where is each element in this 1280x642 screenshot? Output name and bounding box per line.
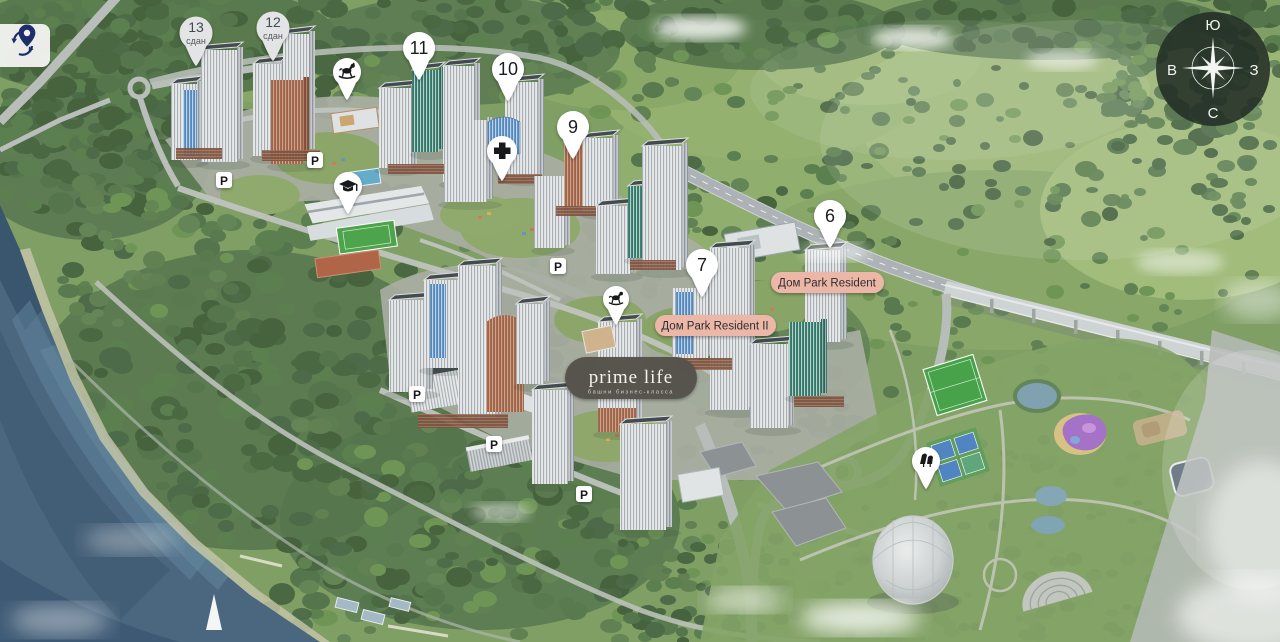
svg-text:9: 9 bbox=[568, 117, 578, 137]
svg-text:10: 10 bbox=[498, 59, 518, 79]
svg-text:Дом Park Resident: Дом Park Resident bbox=[778, 278, 876, 290]
svg-text:prime life: prime life bbox=[589, 367, 673, 388]
svg-text:Дом Park Resident II: Дом Park Resident II bbox=[661, 321, 768, 333]
svg-text:P: P bbox=[311, 154, 319, 168]
svg-text:сдан: сдан bbox=[263, 31, 283, 41]
svg-text:6: 6 bbox=[825, 206, 835, 226]
svg-text:13: 13 bbox=[188, 19, 204, 35]
svg-text:P: P bbox=[490, 438, 498, 452]
svg-text:P: P bbox=[580, 488, 588, 502]
svg-text:В: В bbox=[1167, 62, 1177, 79]
svg-text:З: З bbox=[1249, 62, 1258, 79]
svg-text:сдан: сдан bbox=[186, 36, 206, 46]
svg-text:башни бизнес-класса: башни бизнес-класса bbox=[588, 390, 674, 396]
svg-text:P: P bbox=[220, 174, 228, 188]
svg-text:P: P bbox=[413, 388, 421, 402]
svg-text:Ю: Ю bbox=[1205, 17, 1220, 34]
svg-text:P: P bbox=[554, 260, 562, 274]
svg-text:С: С bbox=[1208, 105, 1219, 122]
svg-text:11: 11 bbox=[410, 38, 429, 58]
svg-text:7: 7 bbox=[697, 255, 707, 275]
svg-text:12: 12 bbox=[265, 14, 281, 30]
